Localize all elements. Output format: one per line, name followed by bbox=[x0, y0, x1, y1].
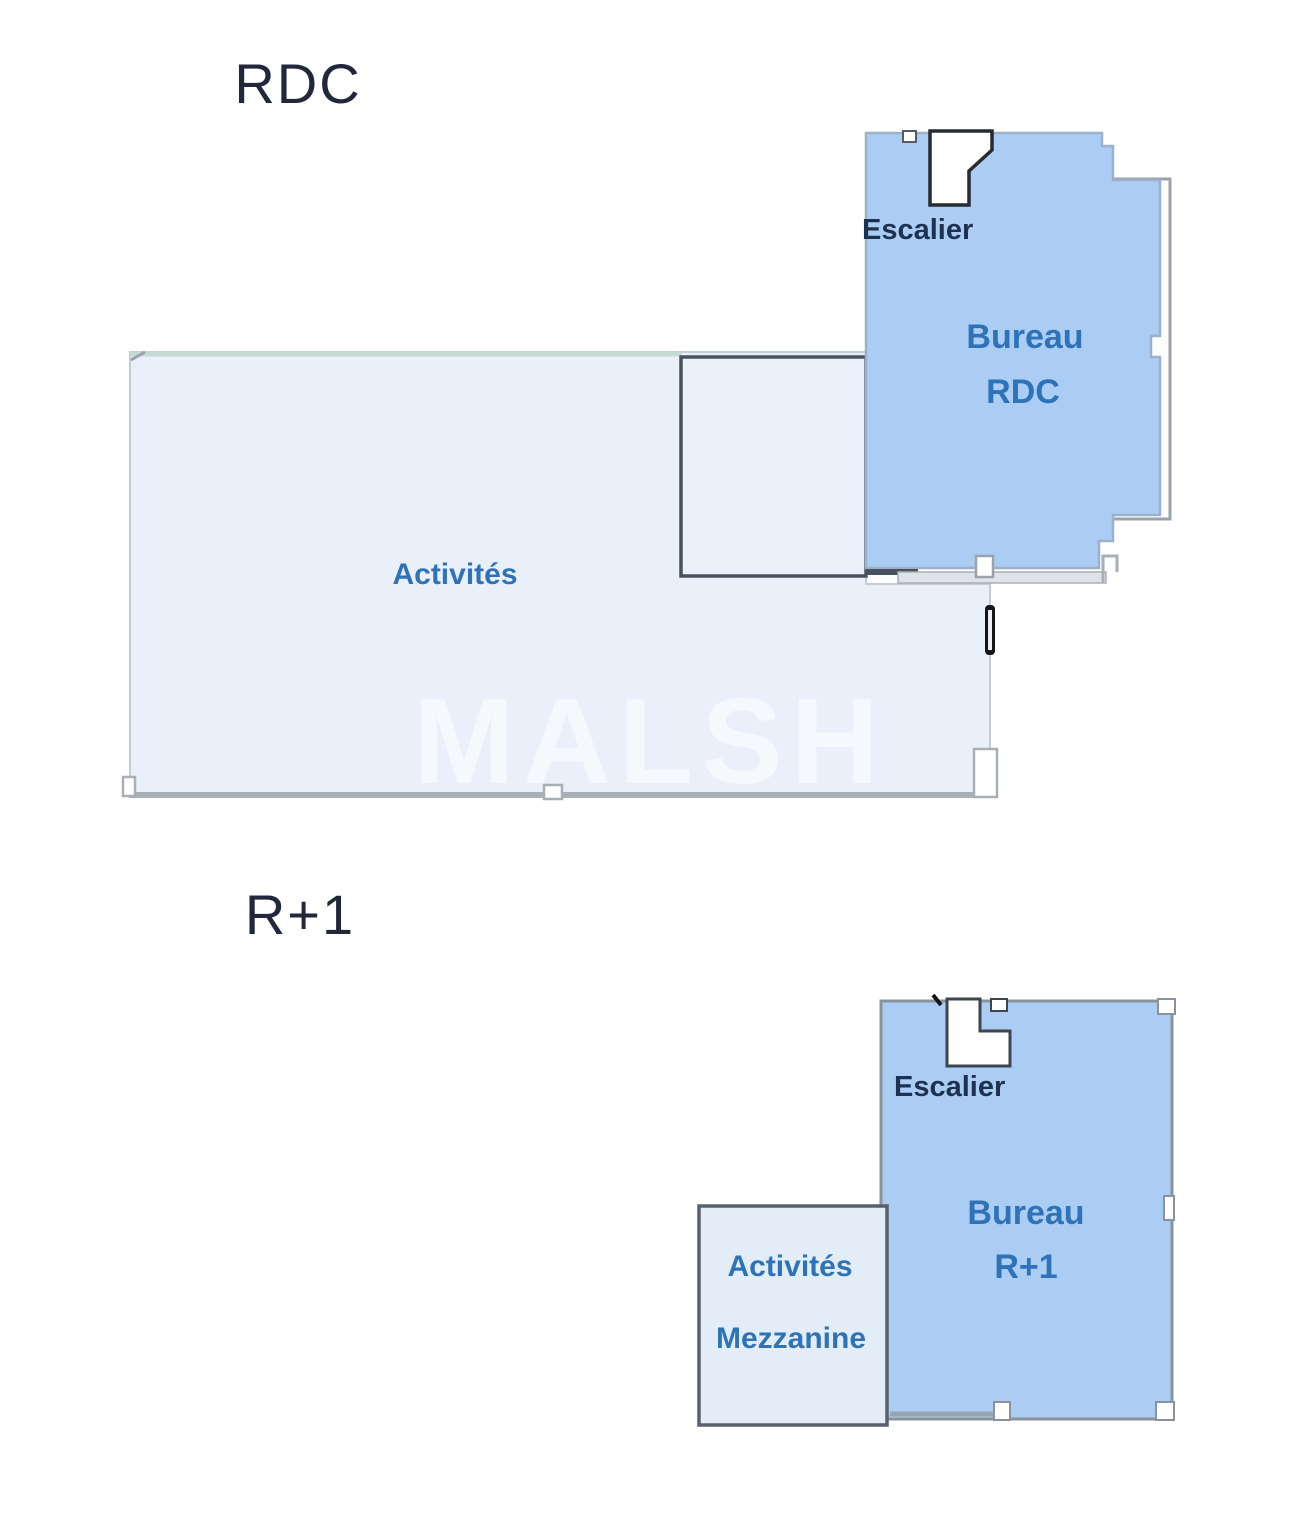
r1-escalier-label: Escalier bbox=[894, 1071, 1005, 1103]
watermark: MALSH bbox=[413, 673, 887, 809]
rdc-activites-label: Activités bbox=[392, 558, 517, 591]
rdc-door-leaf-inner bbox=[988, 610, 992, 650]
r1-bottom-door-notch bbox=[994, 1402, 1010, 1420]
floor-plans-image: RDC bbox=[0, 0, 1300, 1529]
rdc-bureau-label-line2: RDC bbox=[986, 373, 1060, 411]
r1-title: R+1 bbox=[245, 883, 355, 946]
r1-bureau-label-line2: R+1 bbox=[994, 1248, 1057, 1286]
rdc-title: RDC bbox=[234, 52, 361, 115]
rdc-escalier-label: Escalier bbox=[862, 214, 973, 246]
r1-mezzanine-area bbox=[699, 1206, 887, 1425]
rdc-bottomright-notch bbox=[974, 749, 997, 797]
rdc-plan: RDC bbox=[123, 52, 1170, 809]
rdc-bureau-label-line1: Bureau bbox=[966, 318, 1083, 356]
r1-mezzanine-label-line1: Activités bbox=[727, 1250, 852, 1283]
r1-right-mid-notch bbox=[1164, 1196, 1174, 1220]
r1-plan: R+1 Escalier Bureau R+1 Activités Mezz bbox=[245, 883, 1175, 1425]
rdc-bottomleft-notch bbox=[123, 777, 135, 796]
rdc-bureau-bottom-door-notch bbox=[976, 556, 993, 577]
rdc-inner-room bbox=[681, 357, 866, 576]
rdc-bureau-bottom-wall bbox=[898, 572, 1106, 583]
r1-bureau-label-line1: Bureau bbox=[967, 1194, 1084, 1232]
r1-topright-notch bbox=[1158, 999, 1175, 1014]
r1-bottomright-notch bbox=[1156, 1402, 1174, 1420]
r1-top-edge-notch bbox=[991, 999, 1007, 1011]
rdc-top-edge-notch bbox=[903, 131, 916, 142]
r1-mezzanine-label-line2: Mezzanine bbox=[716, 1322, 866, 1355]
